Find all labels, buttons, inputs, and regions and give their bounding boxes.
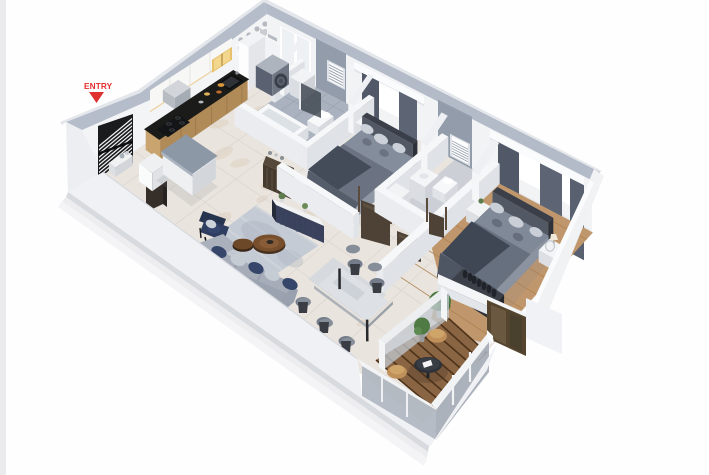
svg-text:ENTRY: ENTRY — [84, 81, 113, 91]
